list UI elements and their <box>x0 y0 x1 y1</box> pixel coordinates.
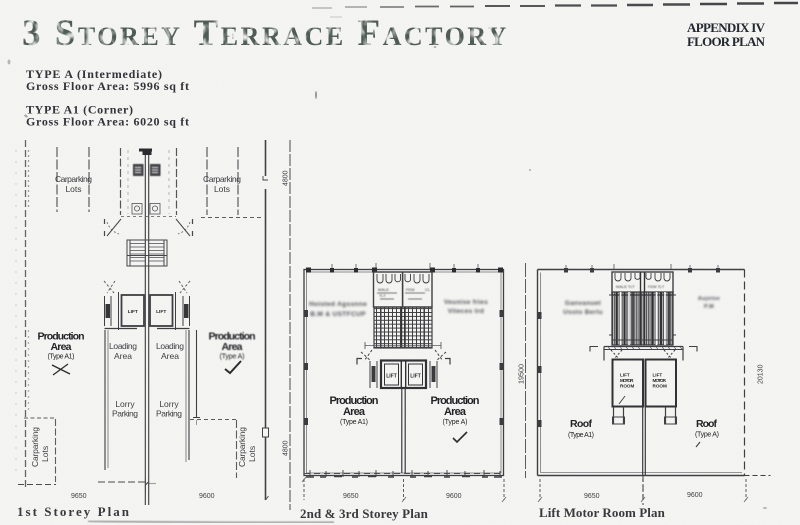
svg-text:1st Storey Plan: 1st Storey Plan <box>17 504 130 519</box>
svg-text:20130: 20130 <box>758 364 765 384</box>
svg-text:FLOOR PLAN: FLOOR PLAN <box>687 34 766 49</box>
svg-text:Hoisted Agssnne: Hoisted Agssnne <box>309 301 367 308</box>
svg-text:Gross Floor Area: 5996 sq ft: Gross Floor Area: 5996 sq ft <box>26 79 189 93</box>
svg-text:2nd & 3rd Storey Plan: 2nd & 3rd Storey Plan <box>300 506 429 521</box>
svg-text:Lift Motor Room Plan: Lift Motor Room Plan <box>539 505 666 520</box>
svg-text:Lorry: Lorry <box>159 399 179 409</box>
svg-text:9600: 9600 <box>446 493 462 500</box>
svg-text:Parking: Parking <box>112 409 138 419</box>
svg-text:MOTOR: MOTOR <box>653 378 667 383</box>
svg-text:(Type A1): (Type A1) <box>340 419 368 426</box>
svg-text:9650: 9650 <box>343 493 359 500</box>
svg-text:MOTOR: MOTOR <box>620 378 634 383</box>
svg-text:Roof: Roof <box>696 418 718 430</box>
svg-text:(Type A): (Type A) <box>220 354 245 361</box>
svg-text:B.M & USTFCUP: B.M & USTFCUP <box>310 311 366 318</box>
svg-text:19500: 19500 <box>517 364 526 384</box>
svg-text:Ganvanuet: Ganvanuet <box>565 300 602 307</box>
svg-text:Area: Area <box>161 351 179 361</box>
svg-text:Area: Area <box>343 406 366 418</box>
svg-text:Carparking: Carparking <box>55 174 92 184</box>
svg-text:(Type A): (Type A) <box>695 432 719 439</box>
svg-text:ROOM: ROOM <box>653 384 667 389</box>
svg-text:Area: Area <box>51 341 72 353</box>
svg-text:Loading: Loading <box>109 341 137 351</box>
svg-text:Lots: Lots <box>65 184 81 194</box>
svg-text:Lots: Lots <box>40 446 50 462</box>
svg-text:4800: 4800 <box>283 440 290 456</box>
svg-text:LIFT: LIFT <box>620 373 630 378</box>
svg-text:(Type A1): (Type A1) <box>568 432 594 439</box>
svg-text:MALE: MALE <box>378 287 389 292</box>
svg-text:LIFT: LIFT <box>386 374 397 380</box>
svg-text:Aujetoe: Aujetoe <box>698 296 720 302</box>
svg-text:LIFT: LIFT <box>410 374 421 380</box>
svg-text:Gross Floor Area: 6020 sq ft: Gross Floor Area: 6020 sq ft <box>26 115 189 129</box>
svg-text:Veunise fries: Veunise fries <box>444 299 488 306</box>
svg-text:ROOM: ROOM <box>620 384 634 389</box>
svg-text:(Type A1): (Type A1) <box>48 354 75 361</box>
svg-text:Roof: Roof <box>570 418 593 430</box>
svg-text:Carparking: Carparking <box>203 174 241 184</box>
svg-text:FEM: FEM <box>406 287 414 292</box>
svg-text:Lots: Lots <box>214 184 230 194</box>
svg-text:9600: 9600 <box>199 493 215 500</box>
svg-text:Viteces trd: Viteces trd <box>448 308 484 315</box>
svg-text:LIFT: LIFT <box>156 309 166 315</box>
svg-text:Carparking: Carparking <box>30 427 40 467</box>
svg-text:APPENDIX IV: APPENDIX IV <box>687 20 766 35</box>
svg-text:LIFT: LIFT <box>128 309 138 315</box>
svg-text:CL: CL <box>425 287 431 292</box>
svg-text:Area: Area <box>114 351 132 361</box>
svg-text:MALE TLT: MALE TLT <box>616 284 635 289</box>
svg-text:4800: 4800 <box>283 170 290 186</box>
svg-text:Carparking: Carparking <box>237 427 247 467</box>
svg-text:(Type A): (Type A) <box>443 419 468 426</box>
svg-text:FEM TLT: FEM TLT <box>648 284 665 289</box>
svg-text:Area: Area <box>444 406 467 418</box>
svg-text:Loading: Loading <box>156 341 184 351</box>
svg-text:Ussto Berlu: Ussto Berlu <box>563 309 603 316</box>
svg-text:Lorry: Lorry <box>115 399 135 409</box>
svg-text:Lots: Lots <box>247 446 257 462</box>
svg-text:P.M: P.M <box>704 304 714 310</box>
svg-text:9600: 9600 <box>687 492 703 499</box>
svg-text:9650: 9650 <box>584 493 600 500</box>
svg-text:Area: Area <box>222 341 243 353</box>
svg-text:Parking: Parking <box>156 409 182 419</box>
svg-text:9650: 9650 <box>71 493 87 500</box>
svg-text:LIFT: LIFT <box>653 373 663 378</box>
svg-text:TLT: TLT <box>379 293 386 298</box>
